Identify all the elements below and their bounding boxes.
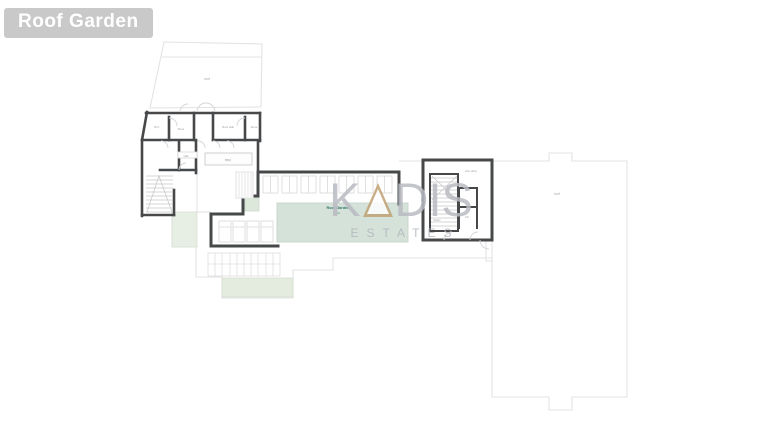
room-hall-label: Roof Hall <box>222 125 234 129</box>
terrace-top-label: roof <box>204 77 210 81</box>
stair-block <box>142 141 197 216</box>
room-store-label: Store <box>178 127 185 131</box>
right-roof-area <box>399 153 627 410</box>
floor-plan: roof roof W.C. Store Roof Hall Store Hal… <box>0 0 768 426</box>
pool-steps <box>236 172 253 198</box>
sunbed-row <box>263 176 392 193</box>
core-lift-label: Lift <box>465 215 469 219</box>
pool-area: m² <box>336 211 340 215</box>
right-roof-label: roof <box>554 192 560 196</box>
room-store2-label: Store <box>251 125 258 129</box>
core-lobby-label: Lift Lobby <box>465 169 478 173</box>
sunbeds-lower <box>219 221 273 242</box>
stair-room-label: Hall <box>184 154 189 158</box>
bbq-label: BBQ <box>225 158 232 162</box>
room-wc-label: W.C. <box>154 125 160 129</box>
trellis <box>208 253 280 276</box>
pool-title: Roof Garden <box>327 206 351 210</box>
right-core <box>423 160 492 240</box>
terrace-top <box>150 42 262 108</box>
floor-title-badge: Roof Garden <box>4 8 153 38</box>
core-stairs-label: Stairs <box>433 218 441 222</box>
